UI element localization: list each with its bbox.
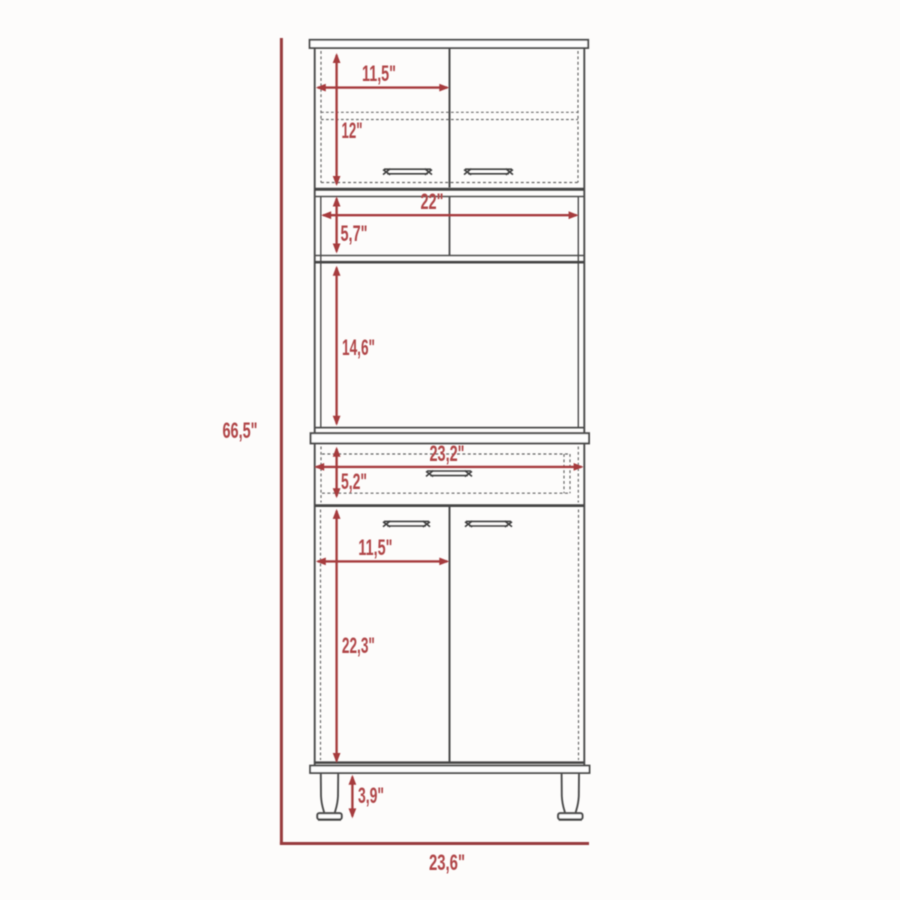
svg-text:12": 12" [342,118,363,143]
svg-text:14,6": 14,6" [342,335,375,360]
svg-text:11,5": 11,5" [362,61,396,86]
svg-text:22": 22" [421,189,444,214]
svg-text:5,2": 5,2" [341,469,367,494]
svg-text:11,5": 11,5" [358,535,392,560]
svg-text:3,9": 3,9" [358,783,384,808]
svg-text:5,7": 5,7" [341,221,368,246]
svg-text:23,6": 23,6" [429,850,465,875]
svg-text:22,3": 22,3" [342,633,375,658]
svg-text:23,2": 23,2" [430,441,465,466]
svg-text:66,5": 66,5" [223,418,258,443]
